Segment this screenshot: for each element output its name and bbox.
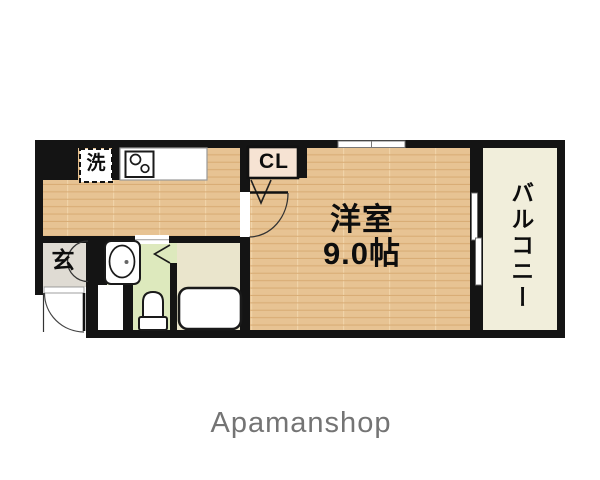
wall-left — [35, 140, 43, 295]
wall-washroom-bath — [170, 263, 177, 330]
room-name-label: 洋室 — [330, 204, 394, 236]
washer-label: 洗 — [86, 154, 105, 173]
brand-logo: Apamanshop — [211, 409, 392, 439]
pipe-space — [98, 285, 123, 330]
entrance-label: 玄 — [52, 249, 75, 272]
wall-corner-block — [43, 148, 78, 180]
wall-entrance-right — [86, 240, 98, 330]
entrance-recess — [43, 287, 86, 330]
bathtub-icon — [179, 288, 241, 329]
floorplan-page: 洗 CL 洋室 9.0帖 バルコニー 玄 Apamanshop — [0, 0, 600, 480]
washbasin-icon — [105, 241, 140, 284]
room-size-label: 9.0帖 — [323, 238, 401, 270]
wall-right — [557, 140, 565, 338]
wall-top — [35, 140, 565, 148]
wall-kitchen-bottom-right — [168, 236, 243, 243]
wall-void-right — [123, 285, 133, 330]
washroom-bath-doorway-floor — [170, 243, 177, 265]
wall-bottom — [86, 330, 565, 338]
room-doorway-opening — [240, 192, 250, 237]
stove-icon — [126, 152, 154, 178]
wall-washer-sliver — [112, 148, 120, 180]
sliding-window — [338, 141, 405, 148]
toilet-icon — [139, 292, 167, 330]
closet-label: CL — [259, 151, 289, 172]
entrance-threshold — [44, 287, 84, 293]
balcony-label: バルコニー — [508, 181, 531, 311]
